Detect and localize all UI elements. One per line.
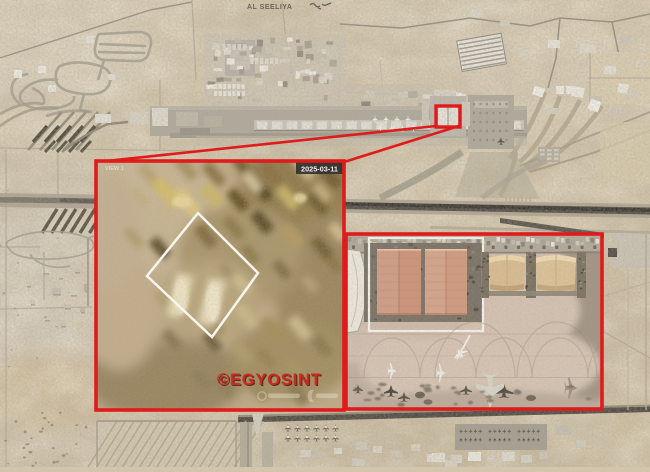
svg-text:©EGYOSINT: ©EGYOSINT <box>217 371 322 389</box>
svg-text:2025-03-11: 2025-03-11 <box>301 164 338 173</box>
svg-text:VIEW 1: VIEW 1 <box>105 166 124 172</box>
svg-text:AL SEELIYA: AL SEELIYA <box>247 4 292 11</box>
